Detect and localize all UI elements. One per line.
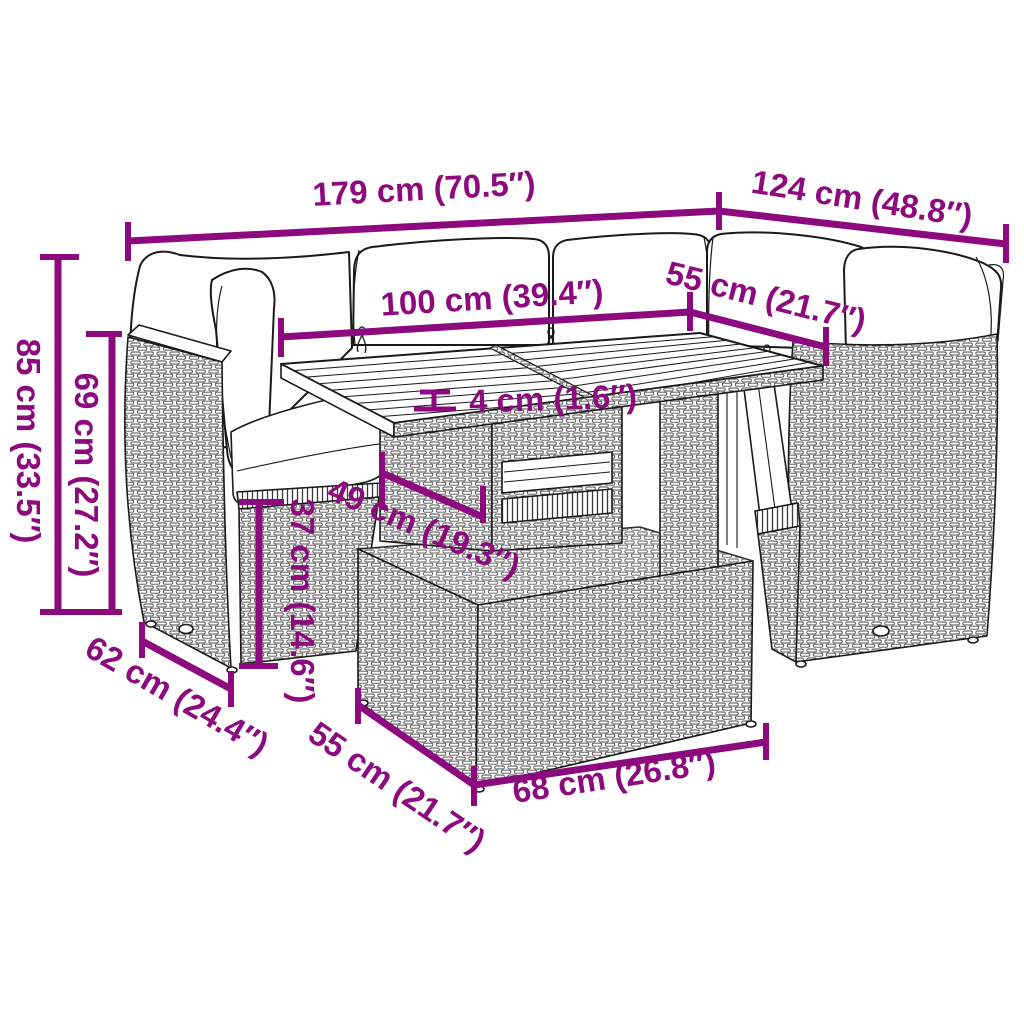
sofa-right-foot2 (968, 637, 978, 643)
ottoman-foot-right (746, 721, 756, 727)
dim-label-total-height: 85 cm (33.5″) (9, 339, 47, 544)
sofa-right-drain-hole (873, 626, 889, 636)
table-right-support (660, 388, 718, 584)
sofa-right-side-panel (788, 334, 997, 662)
sofa-right-foot (796, 661, 806, 667)
dim-label-seat-height: 37 cm (14.6″) (283, 499, 321, 704)
dim-label-top-thickness: 4 cm (1.6″) (468, 377, 637, 421)
table-support-struts (727, 391, 737, 548)
sofa-left-foot (146, 621, 156, 627)
furniture-illustration (0, 0, 1024, 1024)
sofa-left-arm-panel (125, 337, 231, 668)
sofa-right-base-sliver (758, 526, 800, 662)
dim-label-table-height: 69 cm (27.2″) (67, 373, 105, 578)
sofa-left-drain-hole (179, 625, 193, 634)
diagram-canvas: 179 cm (70.5″) 124 cm (48.8″) 100 cm (39… (0, 0, 1024, 1024)
